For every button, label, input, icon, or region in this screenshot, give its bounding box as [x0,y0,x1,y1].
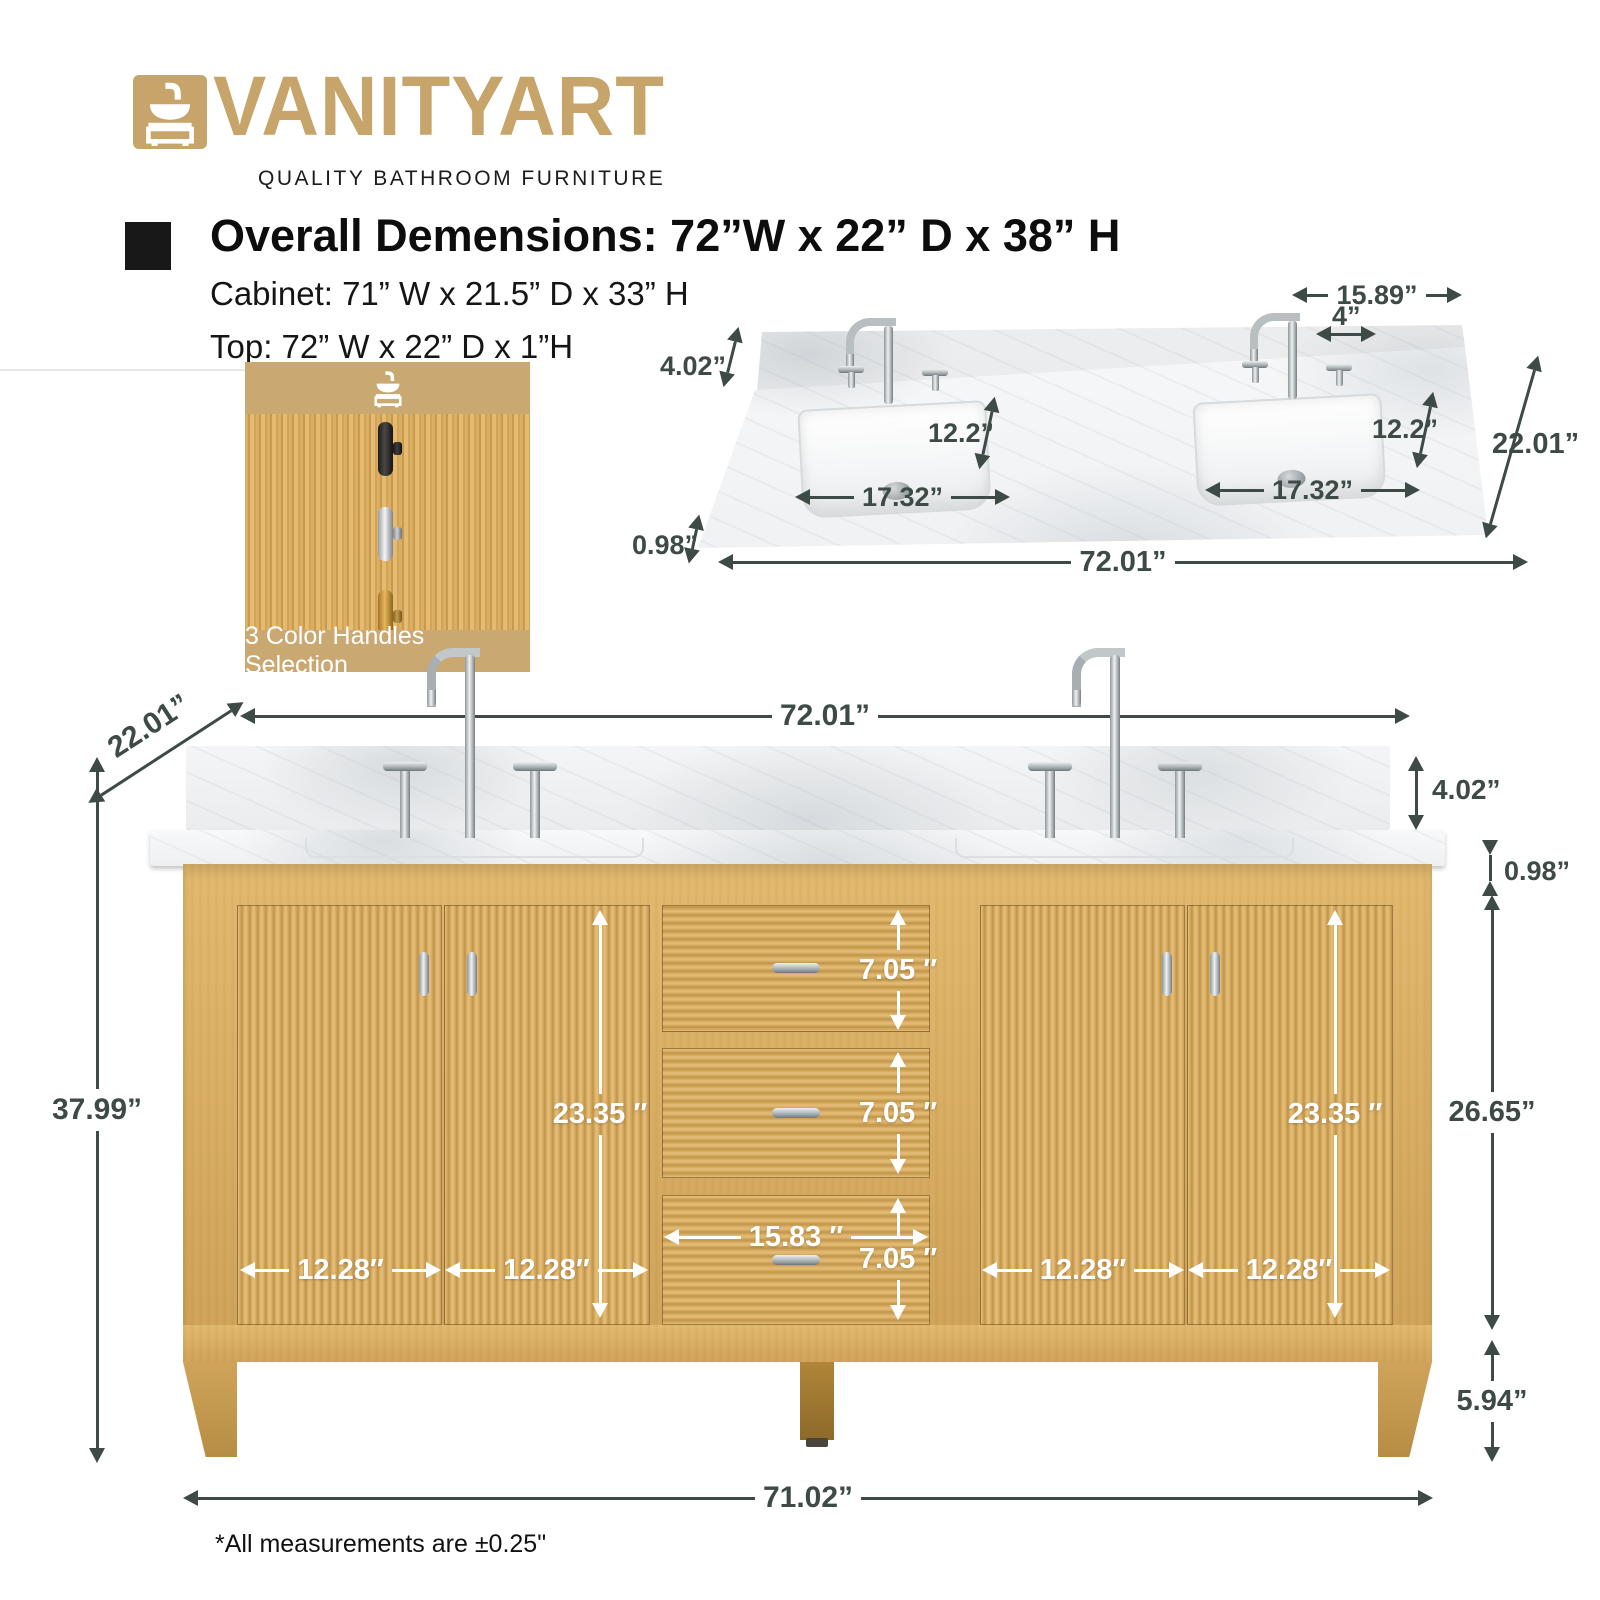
spec-cabinet: Cabinet: 71” W x 21.5” D x 33” H [210,277,689,310]
dim-front-backsplash-arrow [1408,756,1424,830]
spec-top: Top: 72” W x 22” D x 1”H [210,330,573,363]
dim-drawer-width: 15.83 ″ [664,1219,928,1255]
dim-front-height: 37.99” [89,757,105,1463]
dim-front-width-top: 72.01” [240,698,1410,734]
brand-name: VANITYART [213,64,665,148]
spec-bullet-square [125,222,171,270]
faucet-handle-icon [1028,762,1072,771]
vanity-sink-icon [367,367,409,409]
dim-top-sink-width-right: 17.32” [1205,472,1420,508]
dim-top-sink-width-left: 17.32” [795,479,1010,515]
cabinet-leg-middle [800,1362,834,1440]
door-handle-icon [1162,952,1172,996]
dim-base-width: 71.02” [183,1480,1433,1516]
cabinet-leg-left [183,1362,237,1457]
drawer-handle-icon [772,963,820,973]
dim-front-thickness-arrow [1482,840,1498,896]
cabinet-leg-right [1378,1362,1432,1457]
dim-leg-height: 5.94” [1484,1340,1500,1462]
dim-top-backsplash-label: 4.02” [660,353,726,380]
handles-card: 3 Color Handles Selection [245,362,530,672]
dim-front-backsplash-label: 4.02” [1432,776,1501,804]
drawer-handle-icon [772,1255,820,1265]
dim-drawer-height-2: 7.05 ″ [890,1052,906,1174]
dim-door-width-2: 12.28″ [445,1252,648,1288]
dim-top-back-width: 15.89” [1292,277,1462,313]
dim-drawer-height-1: 7.05 ″ [890,910,906,1030]
black-handle-option [378,422,393,476]
faucet-handle-icon [383,762,427,771]
footnote: *All measurements are ±0.25" [215,1532,546,1557]
front-backsplash [186,746,1390,830]
faucet-handle-icon [513,762,557,771]
faucet-handle-icon [1158,762,1202,771]
cabinet-bottom-rail [183,1325,1432,1362]
handles-card-caption: 3 Color Handles Selection [245,622,530,680]
dim-drawer-height-3: 7.05 ″ [890,1198,906,1320]
door-handle-icon [1210,952,1220,996]
dim-top-faucet-spread-arrow [1316,316,1376,352]
door-handle-icon [419,952,429,996]
cabinet-leg-middle-tip [806,1438,828,1447]
drawer-handle-icon [772,1108,820,1118]
vanity-sink-icon [133,75,207,149]
spec-overall: Overall Demensions: 72”W x 22” D x 38” H [210,213,1120,258]
dim-door-width-4: 12.28″ [1188,1252,1390,1288]
brand-tagline: QUALITY BATHROOM FURNITURE [258,168,665,189]
front-sink-recess-right [955,838,1294,858]
brand-logo [133,75,207,149]
page-root: { "brand": { "name": "VANITYART", "tagli… [0,0,1600,1600]
chrome-handle-option [378,507,393,561]
dim-front-thickness-label: 0.98” [1504,858,1570,885]
dim-door-width-1: 12.28″ [240,1252,441,1288]
handles-card-header [245,362,530,414]
dim-cabinet-height: 26.65” [1484,895,1500,1330]
door-handle-icon [467,952,477,996]
handles-card-footer: 3 Color Handles Selection [245,630,530,672]
front-sink-recess-left [305,838,644,858]
dim-top-width: 72.01” [718,544,1528,580]
dim-door-width-3: 12.28″ [982,1252,1184,1288]
